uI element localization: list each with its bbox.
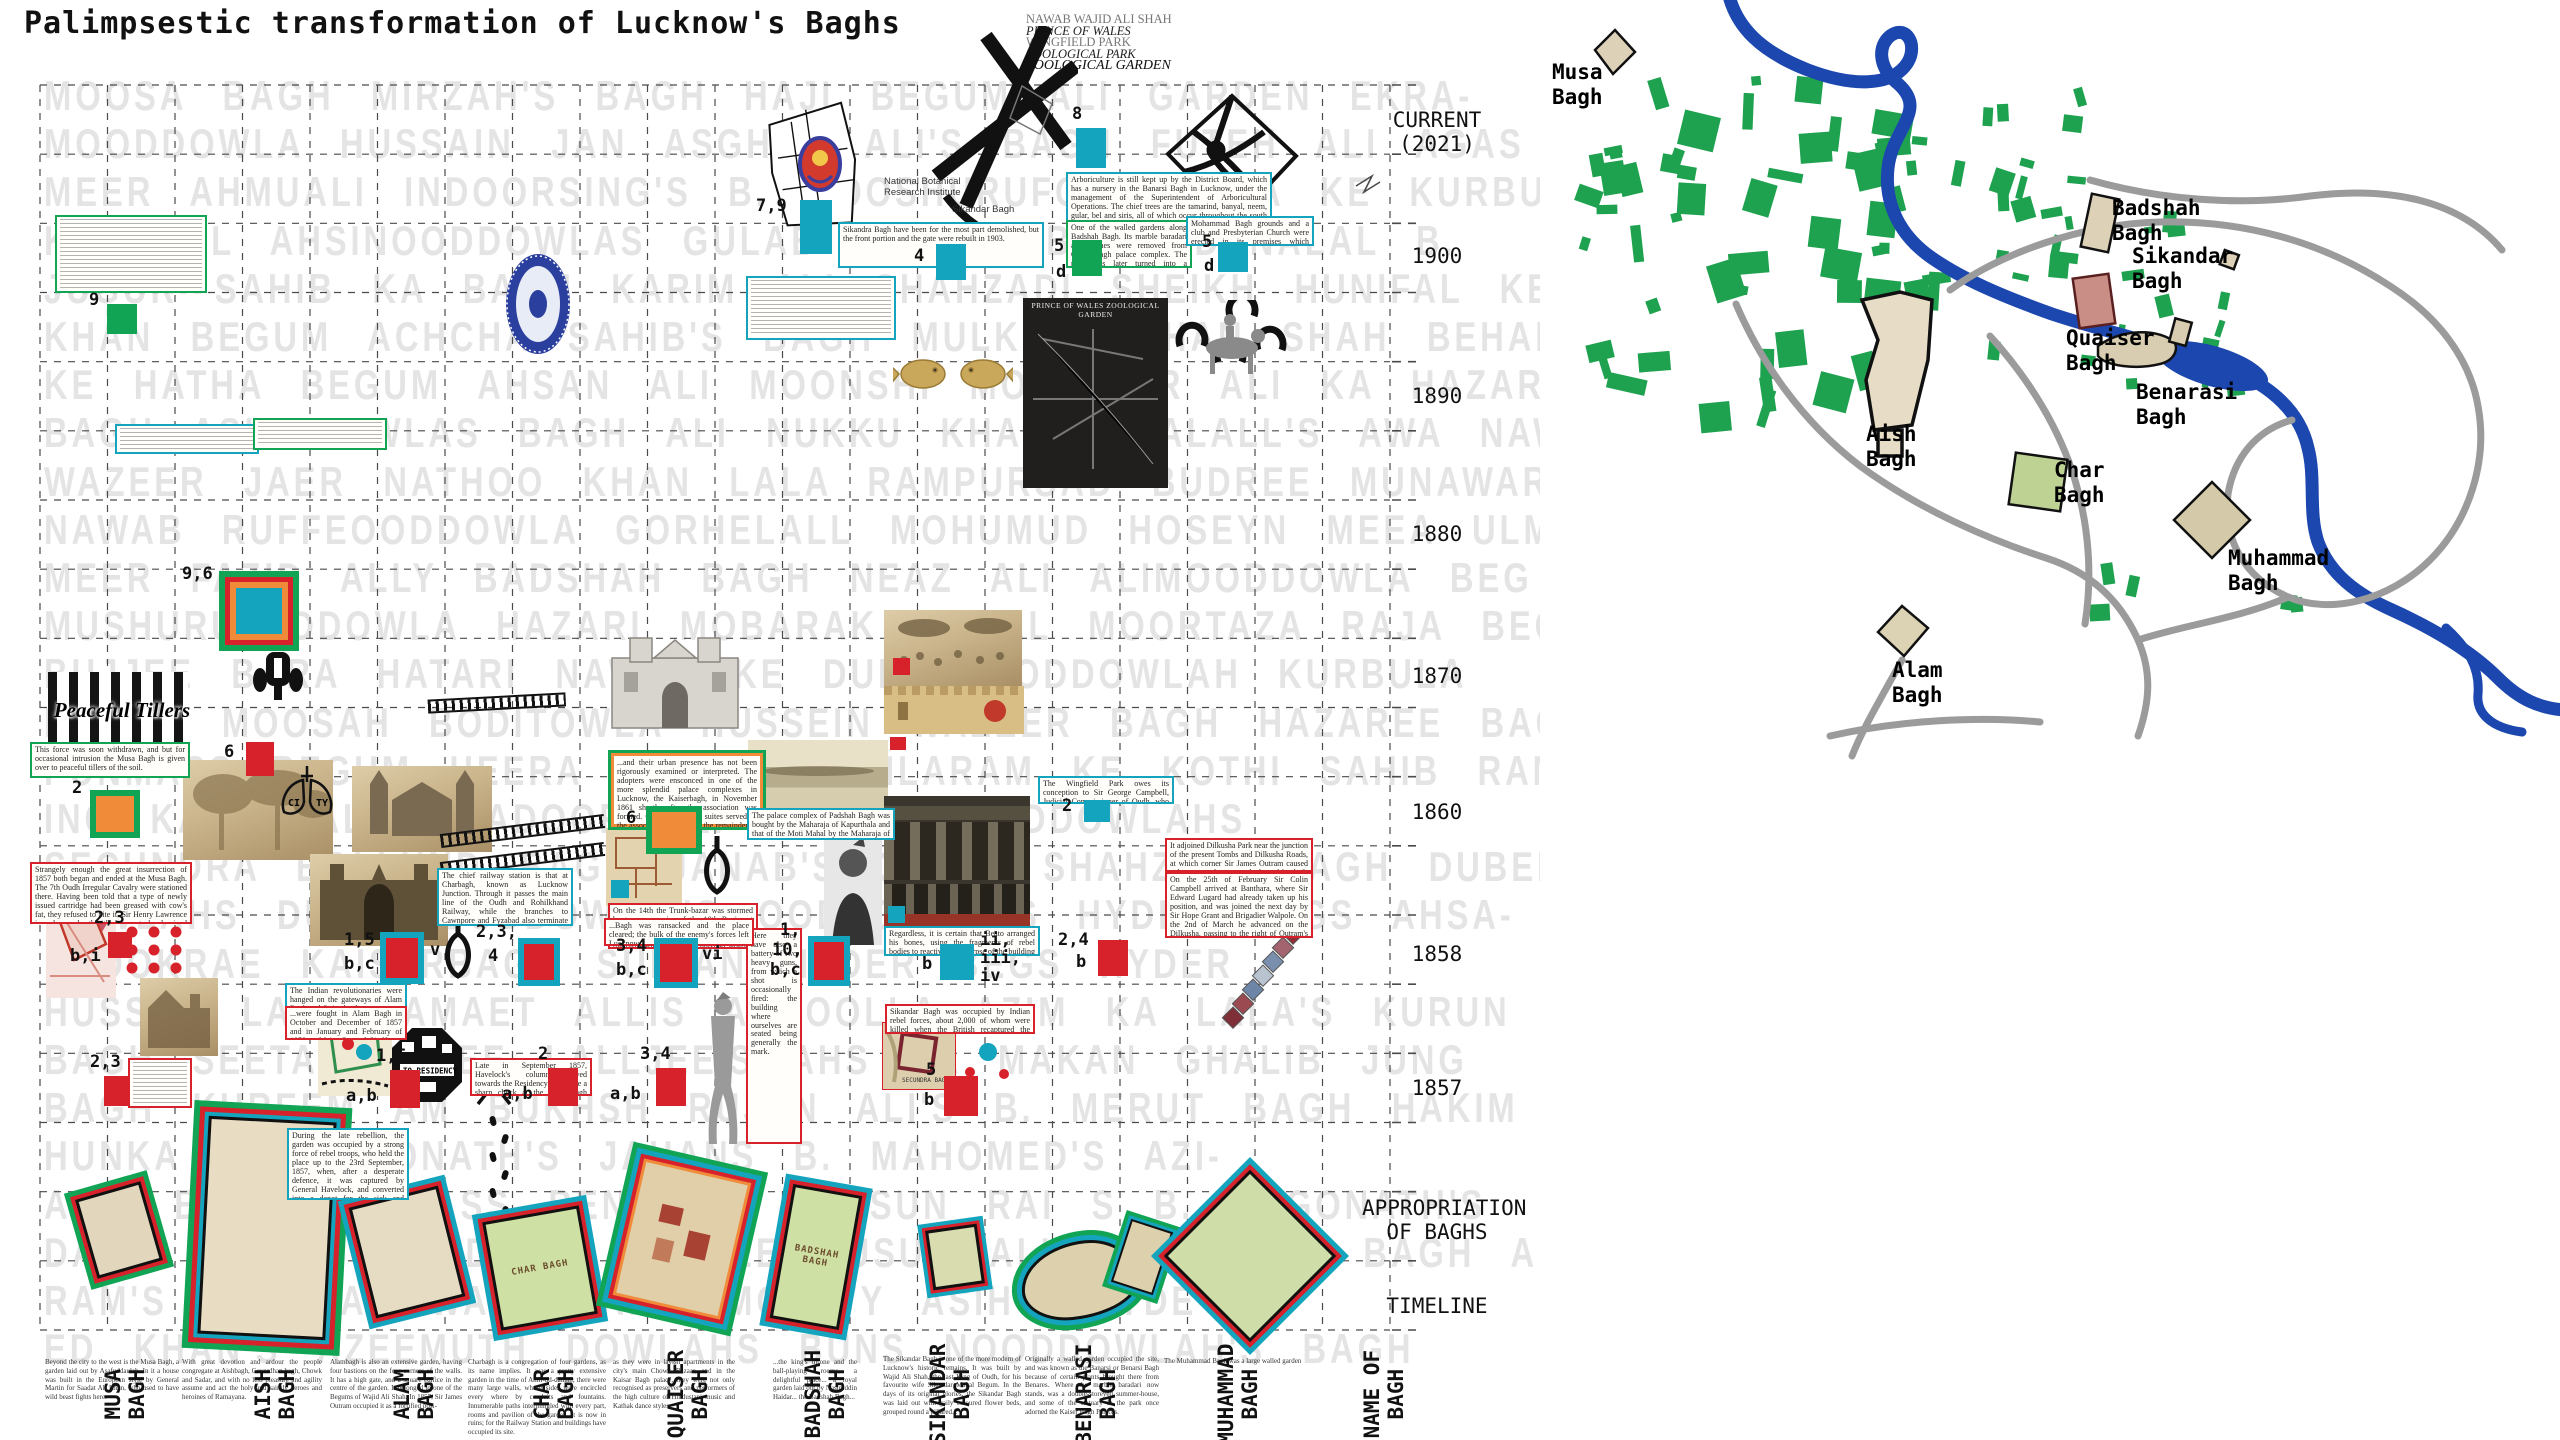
marker-label: a,b: [346, 1086, 377, 1106]
annotation-box: ...were fought in Alam Bagh in October a…: [285, 1006, 407, 1040]
page-title: Palimpsestic transformation of Lucknow's…: [24, 6, 901, 41]
annotation-text: The palace complex of Padshah Bagh was b…: [752, 812, 890, 840]
char-plan-label: CHAR BAGH: [511, 1258, 570, 1278]
hookah-icon: [252, 636, 304, 704]
painted-diamond-chain: [1208, 922, 1318, 1032]
nbri-label: National Botanical Research Institute: [884, 176, 984, 198]
map-label-muhammad: Muhammad Bagh: [2228, 546, 2329, 596]
annotation-box: It adjoined Dilkusha Park near the junct…: [1165, 838, 1313, 872]
timeline-year-label: 1857: [1362, 1076, 1512, 1100]
event-marker-red: 2,4b: [1098, 940, 1128, 976]
marker-square: [944, 1076, 978, 1116]
column-label-sikandar: SIKANDAR BAGH: [926, 1314, 974, 1440]
marker-label: 6: [626, 808, 636, 828]
timeline-year-label: 1860: [1362, 800, 1512, 824]
map-quaiser-bagh-site: [2073, 274, 2116, 329]
column-label-char: CHAR BAGH: [530, 1314, 578, 1440]
marker-label: d: [1204, 256, 1214, 276]
event-marker-cyan: [888, 906, 905, 923]
marker-label: 1,5: [344, 930, 375, 950]
musa-ruins-etching: [140, 978, 218, 1056]
event-marker-red-cyan: 2,3,4: [524, 944, 554, 980]
event-marker-red-cyan: 1,10,b,c: [814, 942, 844, 980]
marker-label: v: [430, 940, 440, 960]
event-marker-green: 5d: [1072, 240, 1102, 276]
event-marker-orange-green: 6: [652, 812, 696, 848]
event-marker-cyan: [611, 880, 629, 898]
event-marker-red: 2a,b: [548, 1068, 578, 1106]
lucknow-map: [1540, 0, 2560, 760]
marker-label: a,b: [610, 1084, 641, 1104]
sikandar-ruins-photo: [884, 796, 1030, 944]
marker-label: iii,: [980, 948, 1021, 968]
annotation-text: On the 25th of February Sir Colin Campbe…: [1170, 876, 1308, 938]
fort-wall-tan: [884, 686, 1024, 734]
timeline-board: Palimpsestic transformation of Lucknow's…: [0, 0, 1540, 1440]
noose-icon-alam: [436, 920, 480, 994]
marker-label: 2: [1062, 796, 1072, 816]
marker-label: 2,4: [1058, 930, 1089, 950]
event-marker-cyan: 4: [936, 244, 966, 280]
marker-label: 2: [538, 1044, 548, 1064]
annotation-box: On the 25th of February Sir Colin Campbe…: [1165, 872, 1313, 938]
event-marker-red-cyan: 3,4b,cvi: [660, 944, 692, 982]
map-label-benarasi: Benarasi Bagh: [2136, 380, 2237, 430]
map-label-aish: Aish Bagh: [1866, 422, 1917, 472]
map-label-quaiser: Quaiser Bagh: [2066, 326, 2155, 376]
university-of-lucknow-crest: [798, 136, 842, 198]
marker-label: 7,9: [756, 196, 787, 216]
axis-break-icon: [1356, 176, 1380, 192]
timeline-year-label: 1890: [1362, 384, 1512, 408]
event-marker-red-cyan: 1,5b,cv: [386, 938, 418, 978]
marker-label: 4: [488, 946, 498, 966]
marker-label: d: [1056, 262, 1066, 282]
marker-square: [1076, 128, 1106, 168]
marker-label: 2: [72, 778, 82, 798]
annotation-box: Sikandar Bagh was occupied by Indian reb…: [885, 1004, 1035, 1034]
marker-label: 5: [1202, 232, 1212, 252]
timeline-year-label: 1858: [1362, 942, 1512, 966]
marker-label: 2,3: [94, 908, 125, 928]
column-label-aish: AISH BAGH: [251, 1314, 299, 1440]
classical-statue-sketch: [703, 992, 743, 1154]
hindi-annotation-aish: [253, 418, 387, 450]
event-marker-orange-green: 2: [96, 796, 134, 832]
marker-label: b: [922, 954, 932, 974]
sikandar-small-label: Sikandar Bagh: [952, 204, 1042, 215]
marker-label: 1,: [780, 920, 800, 940]
marker-square: [893, 658, 910, 675]
timeline-year-label: 1880: [1362, 522, 1512, 546]
marker-label: vi: [702, 944, 722, 964]
column-label-badshah: BADSHAH BAGH: [801, 1314, 849, 1440]
marker-label: 2,3,: [476, 922, 517, 942]
marker-square: [656, 1068, 686, 1106]
column-label-musa: MUSA BAGH: [101, 1314, 149, 1440]
marker-label: b: [924, 1090, 934, 1110]
event-marker-green: 9: [107, 304, 137, 334]
timeline-year-label: 1900: [1362, 244, 1512, 268]
illegible-microtext: [133, 1062, 187, 1104]
marker-square: [246, 742, 274, 776]
event-marker-red: 5b: [944, 1076, 978, 1116]
marker-label: 10,: [772, 940, 803, 960]
marker-square: [104, 1076, 130, 1106]
marker-square: [107, 304, 137, 334]
marker-label: 9: [89, 290, 99, 310]
event-marker-red: 3,4a,b: [656, 1068, 686, 1106]
marker-label: ii,: [980, 930, 1011, 950]
svg-text:TY: TY: [316, 798, 328, 809]
marker-label: b,c: [616, 960, 647, 980]
marker-square: [524, 944, 554, 980]
column-label-muhammad: MUHAMMAD BAGH: [1214, 1314, 1262, 1440]
hindi-annotation-musa: [55, 215, 207, 293]
map-alam-bagh-site: [1878, 606, 1928, 656]
annotation-musa-1857: [128, 1058, 192, 1108]
marker-square: [1098, 940, 1128, 976]
quaiser-gate-engraving: [604, 628, 746, 734]
illegible-microtext: [258, 422, 382, 446]
marker-label: 4: [914, 246, 924, 266]
marker-square: [888, 906, 905, 923]
event-marker-red: 1,5a,b: [390, 1070, 420, 1108]
column-label-alam: ALAM BAGH: [390, 1314, 438, 1440]
indian-railways-emblem: [505, 252, 571, 356]
marker-square: [236, 588, 282, 634]
annotation-box: This force was soon withdrawn, and but f…: [30, 742, 190, 778]
noose-icon-quaiser: [695, 836, 739, 910]
plan-char-bagh: CHAR BAGH: [486, 1209, 595, 1327]
illegible-microtext: [60, 219, 202, 289]
timeline-year-label: 1870: [1362, 664, 1512, 688]
annotation-box: The palace complex of Padshah Bagh was b…: [747, 808, 895, 840]
marker-square: [96, 796, 134, 832]
annotation-text: ...were fought in Alam Bagh in October a…: [290, 1010, 402, 1040]
annotation-text: The chief railway station is that at Cha…: [442, 872, 568, 926]
plan-sikandar-bagh: [928, 1227, 981, 1287]
marker-label: 6: [224, 742, 234, 762]
marker-label: iv: [980, 966, 1000, 986]
event-marker-red: [893, 658, 910, 675]
marker-label: b,c: [344, 954, 375, 974]
annotation-box: During the late rebellion, the garden wa…: [287, 1128, 409, 1200]
goldfish-emblem: [893, 344, 1013, 398]
annotation-text: During the late rebellion, the garden wa…: [292, 1132, 404, 1200]
marker-label: 9,6: [182, 564, 213, 584]
marker-label: 2,3: [90, 1052, 121, 1072]
marker-label: 3,4: [640, 1044, 671, 1064]
horseshoes-and-horse-sketch: [1166, 300, 1298, 392]
svg-text:CI: CI: [288, 798, 300, 809]
timeline-year-label: APPROPRIATION OF BAGHS: [1362, 1196, 1512, 1244]
annotation-aish-small: [115, 424, 259, 454]
marker-label: b: [1076, 952, 1086, 972]
marker-label: 5: [1054, 236, 1064, 256]
marker-square: [548, 1068, 578, 1106]
illegible-microtext: [120, 428, 254, 450]
marker-square: [1084, 800, 1110, 822]
marker-label: 5: [926, 1060, 936, 1080]
map-aish-bagh-site: [1862, 292, 1932, 430]
event-marker-cyan: 8: [1076, 128, 1106, 168]
event-marker-cyan: 2: [1084, 800, 1110, 822]
zoological-garden-bw-map: PRINCE OF WALES ZOOLOGICAL GARDEN: [1023, 298, 1168, 488]
annotation-box: The chief railway station is that at Cha…: [437, 868, 573, 926]
zoo-map-title: PRINCE OF WALES ZOOLOGICAL GARDEN: [1023, 298, 1168, 319]
event-marker-cyan: 7,9: [800, 200, 832, 254]
poster: Palimpsestic transformation of Lucknow's…: [0, 0, 2560, 1440]
map-label-char: Char Bagh: [2054, 458, 2105, 508]
timeline-year-label: CURRENT (2021): [1362, 108, 1512, 156]
marker-square: [814, 942, 844, 980]
column-label-quaiser: QUAISER BAGH: [664, 1314, 712, 1440]
event-marker-red: 2,3: [104, 1076, 130, 1106]
event-marker-cyan: 5d: [1218, 242, 1248, 272]
marker-square: [890, 737, 906, 750]
event-marker-red: [890, 737, 906, 750]
event-marker-red: 2,3b,i: [108, 932, 132, 958]
annotation-text: This force was soon withdrawn, and but f…: [35, 746, 185, 773]
peaceful-tillers-text: Peaceful Tillers: [52, 698, 192, 723]
marker-label: 8: [1072, 104, 1082, 124]
marker-square: [386, 938, 418, 978]
marker-square: [660, 944, 692, 982]
event-marker-nested: 9,6: [236, 588, 282, 634]
map-label-sikandar: Sikandar Bagh: [2132, 244, 2233, 294]
column-label-benarasi: BENARASI BAGH: [1072, 1314, 1120, 1440]
annotation-text: Sikandra Bagh have been for the most par…: [843, 226, 1039, 244]
event-marker-cyan: bii,iii,iv: [940, 944, 974, 980]
marker-square: [936, 244, 966, 280]
marker-label: 1,5: [376, 1046, 407, 1066]
event-marker-red: 6: [246, 742, 274, 776]
marker-square: [1072, 240, 1102, 276]
marker-label: b,i: [70, 946, 101, 966]
map-label-alam: Alam Bagh: [1892, 658, 1943, 708]
illegible-microtext: [751, 280, 891, 336]
map-label-musa: Musa Bagh: [1552, 60, 1603, 110]
key-plan-map: Musa BaghBadshah BaghSikandar BaghQuaise…: [1540, 0, 2560, 1440]
map-label-badshah: Badshah Bagh: [2112, 196, 2201, 246]
marker-square: [652, 812, 696, 848]
marker-label: 3,4: [616, 936, 647, 956]
marker-square: [800, 200, 832, 254]
marker-label: a,b: [502, 1084, 533, 1104]
annotation-text: It adjoined Dilkusha Park near the junct…: [1170, 842, 1308, 872]
gothic-gate-sepia-photo: [310, 854, 448, 946]
hindi-annotation-badshah: [746, 276, 896, 340]
annotation-text: Sikandar Bagh was occupied by Indian reb…: [890, 1008, 1030, 1034]
marker-square: [108, 932, 132, 958]
peaceful-tillers-image: Peaceful Tillers: [48, 672, 188, 748]
marker-square: [390, 1070, 420, 1108]
maharaja-portrait: [824, 833, 882, 945]
lungs-city-icon: CITY: [276, 764, 338, 816]
river-landscape-sepia: [748, 740, 888, 808]
marker-square: [1218, 242, 1248, 272]
badshah-plan-label: BADSHAH BAGH: [792, 1243, 840, 1270]
marker-square: [940, 944, 974, 980]
column-label-name of: NAME OF BAGH: [1360, 1314, 1408, 1440]
marker-square: [611, 880, 629, 898]
marker-label: b,c: [770, 960, 801, 980]
